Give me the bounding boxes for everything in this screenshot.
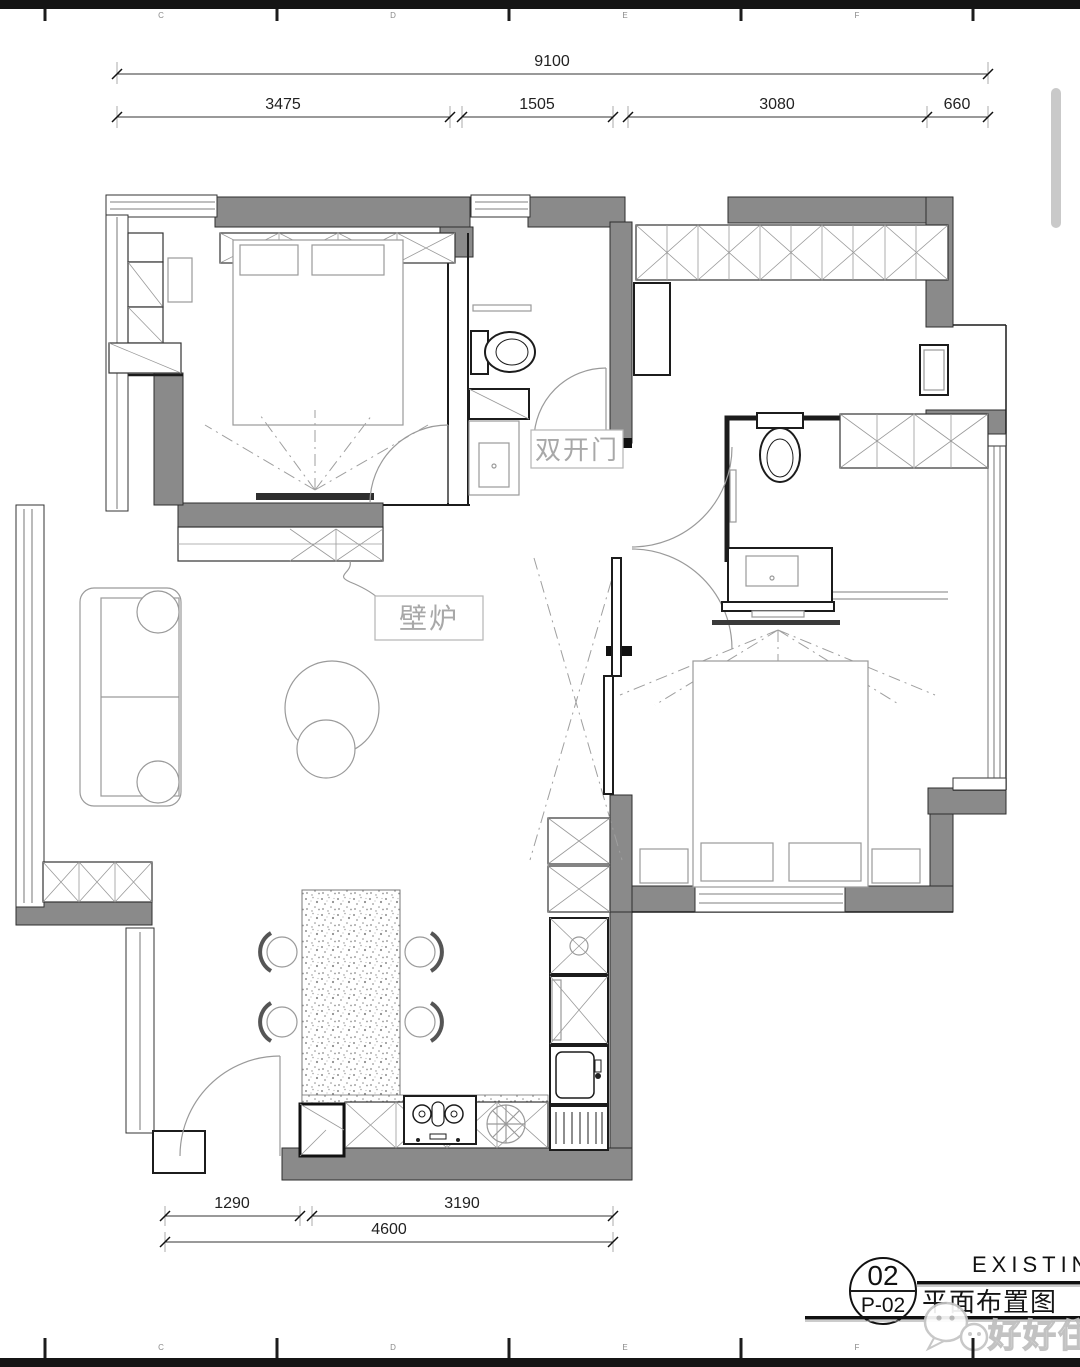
sheet-number: 02 [867,1260,898,1291]
tall-cabinet-column [548,818,610,1150]
wall [215,197,470,227]
grid-letter-e-bottom: E [622,1343,627,1352]
dim-seg-2: 1505 [519,96,555,113]
grid-letter-c: C [158,11,164,20]
island-table [302,890,400,1103]
bathroom-top-door [534,368,606,440]
nightstand [640,849,688,883]
window-bathroom-top [471,195,530,217]
grid-letter-c-bottom: C [158,1343,164,1352]
wall [610,795,632,912]
vanity [469,389,529,495]
wall [154,373,183,505]
grid-letter-f: F [855,11,860,20]
nightstand [168,258,192,302]
living-room: 壁炉 [43,527,483,902]
nightstand [872,849,920,883]
bathroom-right [730,413,803,522]
dim-bottom-2: 3190 [444,1195,480,1212]
floor-plan-sheet: C D E F 9100 3475 1505 3080 660 [0,0,1080,1367]
tv [712,602,840,625]
window-bedroom2-bottom [695,886,845,912]
wok-burner [487,1105,525,1143]
dim-seg-4: 660 [944,96,971,113]
title-header-text: EXISTIN [972,1252,1080,1277]
ruler-bottom-bar [0,1358,1080,1367]
vent-grill [550,1106,608,1150]
tv [256,493,374,500]
fridge [300,1104,344,1156]
ruler-bottom-ticks [45,1338,973,1358]
window-top-left [106,195,217,217]
grid-letter-d: D [390,11,396,20]
bed-double [693,661,868,887]
mirror [730,470,736,522]
shelf [128,233,163,262]
wall [928,788,1006,814]
toilet [757,413,803,482]
kitchen-dining [180,818,610,1156]
sink [550,1046,608,1104]
dimensions-top: 9100 3475 1505 3080 660 [112,53,993,128]
side-table [297,720,355,778]
bed-double [233,240,403,425]
scrollbar-thumb[interactable] [1051,88,1061,228]
wall [178,503,383,527]
dim-seg-3: 3080 [759,96,795,113]
shelf [473,305,531,311]
grid-letter-e: E [622,11,627,20]
dim-bottom-total: 4600 [371,1221,407,1238]
bay-window-right [953,434,1006,790]
dim-total-width: 9100 [534,53,570,70]
bedroom-left-door [370,425,448,503]
sofa [80,588,181,806]
dim-seg-1: 3475 [265,96,301,113]
wall [610,912,632,1152]
double-door-label: 双开门 [535,435,619,465]
tv-cabinet [728,548,832,604]
dimensions-bottom: 1290 3190 4600 [160,1195,618,1252]
toilet [471,331,535,374]
desk [920,345,948,395]
ruler-top-ticks [45,9,973,21]
entry-pier [153,1131,205,1173]
grid-letter-f-bottom: F [855,1343,860,1352]
stove [404,1096,476,1144]
wall [610,222,632,443]
fireplace-leader [344,561,378,598]
ruler-bottom: C D E F [0,1338,1080,1367]
dim-bottom-1: 1290 [214,1195,250,1212]
hall-wardrobe [636,225,948,280]
wall [843,886,953,912]
window-living-left [16,505,44,907]
sheet-code: P-02 [861,1294,905,1317]
grid-letter-d-bottom: D [390,1343,396,1352]
sheet-number-bubble: 02 P-02 [850,1258,916,1324]
sliding-door [604,558,621,794]
watermark-text: 好好住 [987,1317,1080,1354]
ruler-top-bar [0,0,1080,9]
hall-cabinet [634,283,670,375]
wall [728,197,953,223]
fireplace-label: 壁炉 [399,603,459,634]
ruler-top: C D E F [0,0,1080,21]
